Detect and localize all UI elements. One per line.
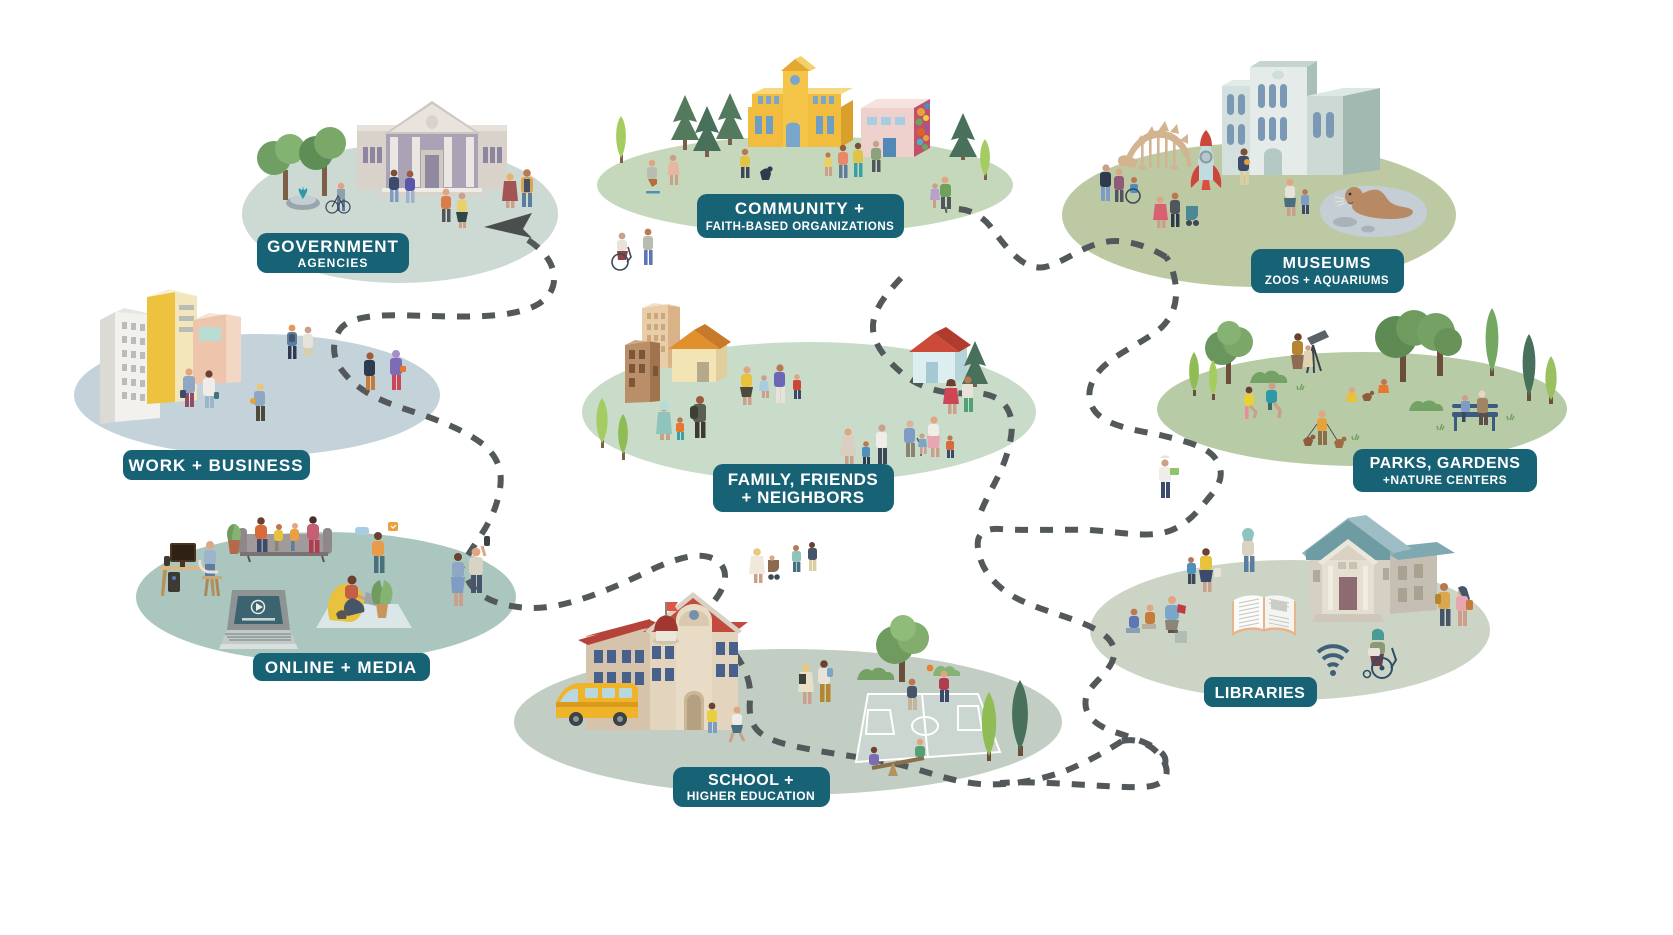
svg-text:FAITH-BASED ORGANIZATIONS: FAITH-BASED ORGANIZATIONS (706, 221, 895, 233)
svg-text:MUSEUMS: MUSEUMS (1283, 255, 1372, 272)
svg-text:PARKS, GARDENS: PARKS, GARDENS (1370, 455, 1521, 472)
svg-text:LIBRARIES: LIBRARIES (1215, 685, 1306, 702)
svg-text:ZOOS + AQUARIUMS: ZOOS + AQUARIUMS (1265, 275, 1389, 287)
svg-text:SCHOOL +: SCHOOL + (708, 772, 794, 789)
svg-text:+ NEIGHBORS: + NEIGHBORS (741, 488, 864, 507)
svg-text:WORK + BUSINESS: WORK + BUSINESS (128, 456, 303, 475)
svg-text:+NATURE CENTERS: +NATURE CENTERS (1383, 473, 1507, 487)
svg-text:AGENCIES: AGENCIES (298, 256, 369, 270)
svg-text:COMMUNITY +: COMMUNITY + (735, 199, 865, 218)
svg-text:FAMILY, FRIENDS: FAMILY, FRIENDS (728, 470, 878, 489)
svg-text:ONLINE + MEDIA: ONLINE + MEDIA (265, 658, 417, 677)
svg-text:GOVERNMENT: GOVERNMENT (267, 237, 399, 256)
svg-text:HIGHER EDUCATION: HIGHER EDUCATION (687, 789, 815, 803)
